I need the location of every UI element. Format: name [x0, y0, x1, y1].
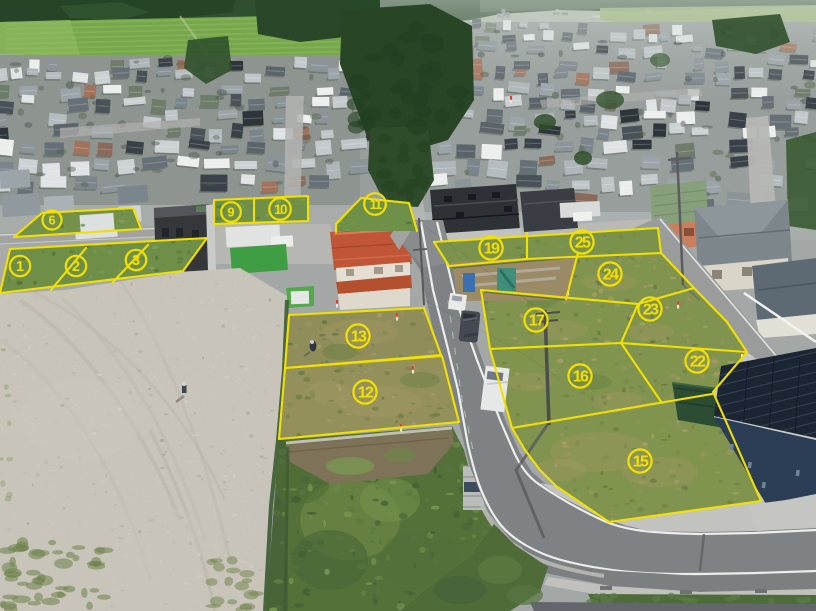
- svg-text:6: 6: [49, 213, 56, 227]
- svg-text:24: 24: [603, 267, 619, 284]
- svg-text:17: 17: [529, 313, 545, 330]
- svg-text:25: 25: [575, 235, 591, 252]
- svg-text:16: 16: [573, 369, 589, 386]
- svg-text:3: 3: [132, 253, 140, 269]
- svg-text:22: 22: [690, 354, 706, 371]
- svg-text:12: 12: [358, 385, 374, 402]
- svg-text:10: 10: [274, 202, 287, 217]
- svg-text:15: 15: [633, 454, 649, 471]
- svg-text:19: 19: [484, 241, 500, 258]
- svg-text:23: 23: [643, 302, 659, 319]
- svg-text:9: 9: [227, 205, 234, 220]
- svg-text:13: 13: [351, 329, 367, 346]
- svg-text:2: 2: [72, 259, 80, 275]
- svg-text:1: 1: [16, 259, 24, 275]
